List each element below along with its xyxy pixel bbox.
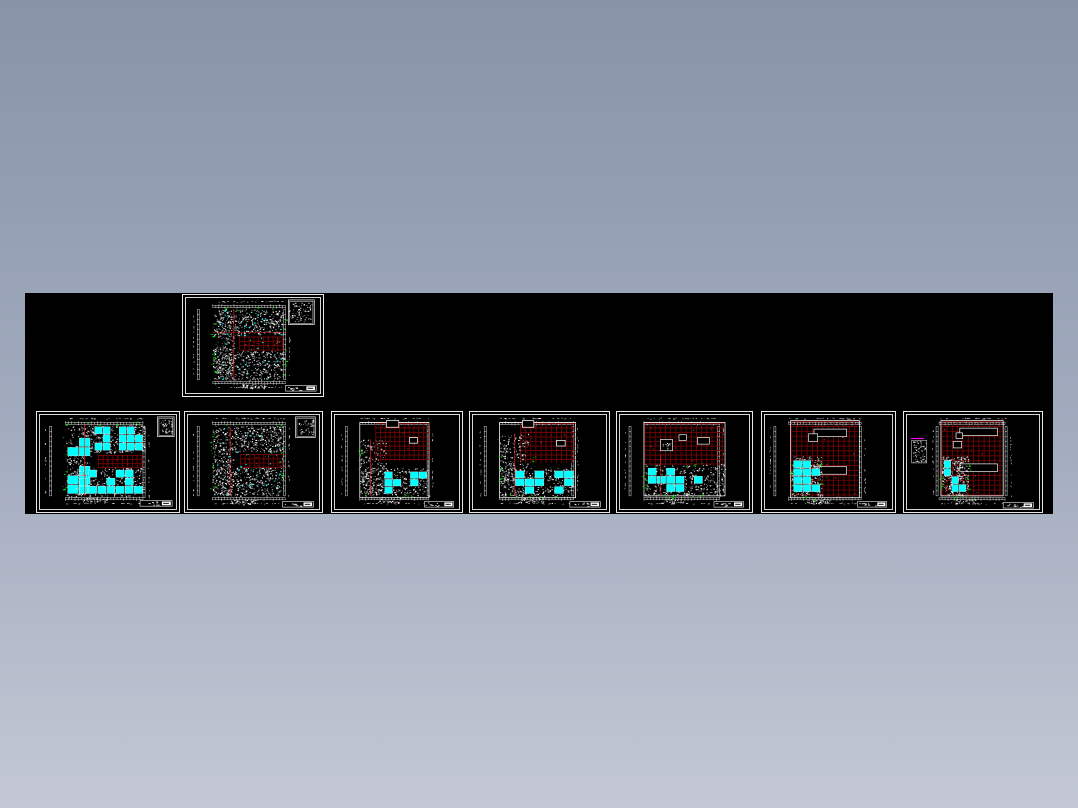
sheet-drawing <box>335 415 459 509</box>
cad-canvas[interactable] <box>25 293 1053 514</box>
drawing-sheet-bottom-5[interactable] <box>616 411 753 513</box>
drawing-sheet-bottom-4[interactable] <box>469 411 610 513</box>
sheet-drawing <box>620 415 749 509</box>
sheet-frame <box>764 414 893 510</box>
sheet-frame <box>906 414 1040 510</box>
desktop-background <box>0 0 1078 808</box>
sheet-frame <box>334 414 460 510</box>
drawing-sheet-top-1[interactable] <box>182 294 324 397</box>
sheet-frame <box>187 414 320 510</box>
sheet-drawing <box>473 415 606 509</box>
drawing-sheet-bottom-1[interactable] <box>36 411 180 513</box>
drawing-sheet-bottom-7[interactable] <box>903 411 1043 513</box>
sheet-frame <box>39 414 177 510</box>
sheet-drawing <box>186 298 320 393</box>
sheet-drawing <box>907 415 1039 509</box>
drawing-sheet-bottom-3[interactable] <box>331 411 463 513</box>
sheet-frame <box>185 297 321 394</box>
sheet-frame <box>472 414 607 510</box>
drawing-sheet-bottom-6[interactable] <box>761 411 896 513</box>
sheet-frame <box>619 414 750 510</box>
sheet-drawing <box>40 415 176 509</box>
sheet-drawing <box>765 415 892 509</box>
sheet-drawing <box>188 415 319 509</box>
drawing-sheet-bottom-2[interactable] <box>184 411 323 513</box>
